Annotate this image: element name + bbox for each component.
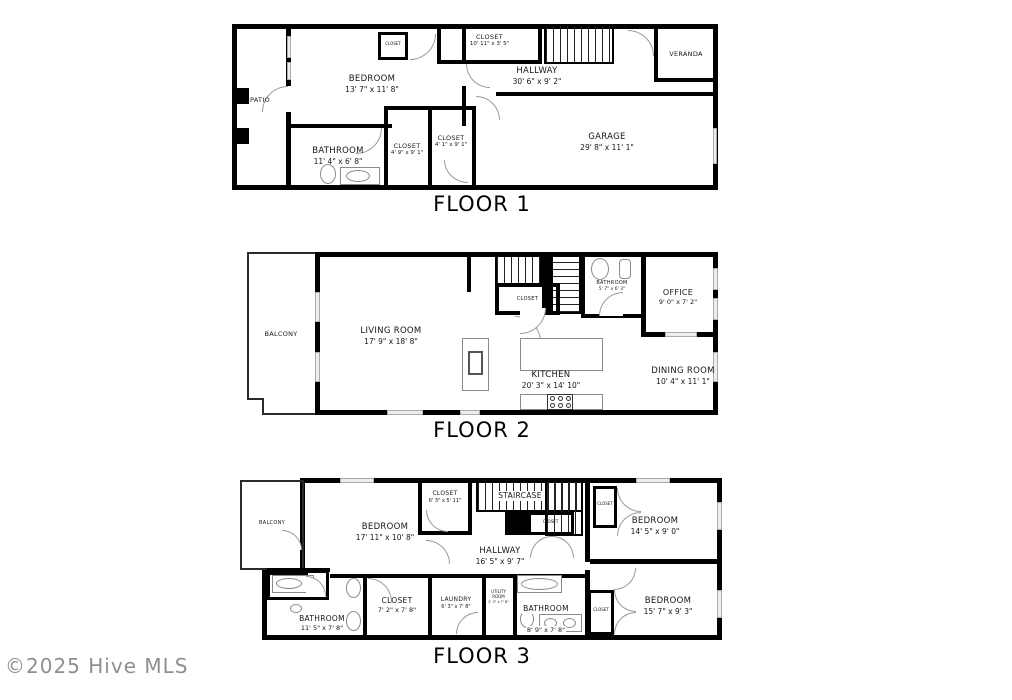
sink-fixture	[468, 351, 483, 375]
room-name: BATHROOM	[292, 146, 384, 157]
room-name: CLOSET	[386, 142, 428, 150]
burner	[558, 396, 563, 401]
burner	[566, 403, 571, 408]
bathtub-basin	[276, 578, 302, 589]
room-name: PATIO	[234, 96, 286, 104]
room-name: CLOSET	[368, 596, 426, 606]
door-arc	[617, 488, 641, 512]
bathtub-basin	[346, 170, 370, 182]
floor1-title: FLOOR 1	[332, 192, 632, 216]
room-name: GARAGE	[532, 132, 682, 143]
floor1-garage-label: GARAGE 29' 8" x 11' 1"	[532, 132, 682, 153]
patio-post	[235, 128, 249, 144]
room-dims: 5' 7" x 6' 3"	[581, 287, 643, 293]
floor3-closet-mid-label: CLOSET 7' 2" x 7' 8"	[368, 596, 426, 614]
window	[713, 128, 717, 164]
floor1-hallway-label: HALLWAY 30' 6" x 9' 2"	[472, 66, 602, 87]
room-name: LIVING ROOM	[341, 326, 441, 337]
door-arc	[426, 540, 450, 564]
wall	[654, 78, 714, 82]
burner	[550, 396, 555, 401]
room-name: LAUNDRY	[432, 596, 480, 604]
floor3-closet-top-label: CLOSET 6' 3" x 5' 11"	[420, 490, 470, 504]
room-name: VERANDA	[658, 50, 714, 58]
window	[315, 292, 320, 322]
room-name: CLOSET	[430, 134, 472, 142]
floor3-bedroom-right-label: BEDROOM 14' 5" x 9' 0"	[605, 516, 705, 537]
floor1-bathroom-label: BATHROOM 11' 4" x 6' 8"	[292, 146, 384, 167]
wall	[482, 574, 486, 635]
door-arc	[456, 612, 478, 634]
room-dims: 29' 8" x 11' 1"	[532, 143, 682, 153]
room-dims: 9' 0" x 7' 2"	[643, 298, 713, 306]
wall	[590, 559, 722, 564]
toilet-fixture	[320, 164, 336, 184]
room-name: HALLWAY	[450, 546, 550, 557]
toilet-fixture	[346, 578, 361, 598]
balcony-notch	[247, 398, 264, 415]
floor3-balcony-label: BALCONY	[242, 520, 302, 527]
floor2-office-label: OFFICE 9' 0" x 7' 2"	[643, 288, 713, 307]
floor3-utility-label: UTILITY ROOM 2' 3" x 7' 8"	[485, 590, 512, 604]
room-name: OFFICE	[643, 288, 713, 298]
floor3-closet-tr-label: CLOSET	[593, 502, 617, 507]
burner	[566, 396, 571, 401]
room-dims: 2' 3" x 7' 8"	[485, 600, 512, 604]
wall	[496, 92, 714, 96]
room-dims: 15' 7" x 9' 3"	[618, 607, 718, 617]
room-dims: 4' 1" x 9' 1"	[430, 142, 472, 149]
room-name: CLOSET	[420, 490, 470, 498]
room-name: BALCONY	[251, 330, 311, 338]
floor2-bathroom-label: BATHROOM 5' 7" x 6' 3"	[581, 280, 643, 292]
room-name: BEDROOM	[618, 596, 718, 607]
window	[287, 62, 291, 80]
floor3-bathroom-mid-label: BATHROOM 8' 9" x 7' 8"	[512, 596, 580, 638]
room-name: UTILITY ROOM	[485, 590, 512, 600]
room-dims: 8' 9" x 7' 8"	[526, 626, 566, 634]
floor3-laundry-label: LAUNDRY 6' 3" x 7' 8"	[432, 596, 480, 610]
room-name: HALLWAY	[472, 66, 602, 77]
room-dims: 4' 9" x 9' 1"	[386, 150, 428, 157]
patio-label: PATIO	[234, 96, 286, 104]
burner	[558, 403, 563, 408]
room-name: BALCONY	[242, 520, 302, 527]
window	[717, 502, 722, 530]
window	[387, 410, 423, 415]
room-dims: 16' 5" x 9' 7"	[450, 557, 550, 567]
staircase-hatch	[544, 24, 614, 64]
room-name: CLOSET	[529, 520, 572, 525]
floor2-title: FLOOR 2	[332, 418, 632, 442]
room-dims: 10' 4" x 11' 1"	[633, 377, 733, 387]
floor1-closet-a-label: CLOSET 4' 9" x 9' 1"	[386, 142, 428, 158]
floor1-closet-b-label: CLOSET 4' 1" x 9' 1"	[430, 134, 472, 150]
window	[665, 332, 697, 337]
room-name: STAIRCASE	[495, 491, 545, 501]
room-dims: 10' 11" x 3' 5"	[439, 41, 540, 48]
toilet-fixture	[591, 258, 609, 280]
stove-fixture	[547, 394, 573, 410]
bathtub-basin	[521, 578, 558, 590]
room-dims: 6' 3" x 5' 11"	[420, 498, 470, 505]
room-name: CLOSET	[439, 33, 540, 41]
room-name: CLOSET	[379, 42, 407, 47]
floor3-bedroom-bottom-label: BEDROOM 15' 7" x 9' 3"	[618, 596, 718, 617]
wall	[262, 635, 722, 640]
room-dims: 20' 3" x 14' 10"	[501, 381, 601, 391]
staircase-hatch	[495, 255, 542, 285]
sink-fixture	[290, 604, 302, 613]
room-name: BATHROOM	[278, 614, 366, 624]
sink-fixture	[619, 259, 631, 279]
room-dims: 13' 7" x 11' 8"	[307, 85, 437, 95]
window	[340, 478, 374, 483]
floor1-veranda-label: VERANDA	[658, 50, 714, 58]
door-arc	[552, 536, 574, 558]
room-dims: 30' 6" x 9' 2"	[472, 77, 602, 87]
room-dims: 7' 2" x 7' 8"	[368, 606, 426, 614]
floor3-closet-br-label: CLOSET	[589, 608, 613, 613]
room-name: DINING ROOM	[633, 366, 733, 377]
floor3-plan: BALCONY BEDROOM 17' 11" x 10' 8" CLOSET …	[240, 478, 722, 640]
room-name: BEDROOM	[307, 74, 437, 85]
watermark: ©2025 Hive MLS	[5, 654, 188, 678]
room-name: CLOSET	[589, 608, 613, 613]
room-dims: 11' 5" x 7' 8"	[278, 624, 366, 632]
floor1-entry-closet-label: CLOSET	[379, 42, 407, 47]
room-name: CLOSET	[593, 502, 617, 507]
floor2-living-room-label: LIVING ROOM 17' 9" x 18' 8"	[341, 326, 441, 347]
window	[315, 352, 320, 382]
floor1-plan: PATIO BEDROOM 13' 7" x 11' 8" CLOSET CLO…	[232, 24, 718, 190]
floor3-bathroom-left-label: BATHROOM 11' 5" x 7' 8"	[278, 614, 366, 632]
window	[287, 36, 291, 58]
floor2-closet-label: CLOSET	[497, 296, 558, 303]
room-dims: 14' 5" x 9' 0"	[605, 527, 705, 537]
room-dims: 17' 9" x 18' 8"	[341, 337, 441, 347]
staircase-landing-block	[505, 512, 528, 535]
floor2-kitchen-label: KITCHEN 20' 3" x 14' 10"	[501, 370, 601, 391]
room-dims: 6' 3" x 7' 8"	[432, 604, 480, 611]
window	[460, 410, 480, 415]
room-name: BATHROOM	[522, 604, 570, 614]
door-arc	[614, 568, 636, 590]
floor3-closet-stairs-label: CLOSET	[529, 520, 572, 525]
floorplan-page: PATIO BEDROOM 13' 7" x 11' 8" CLOSET CLO…	[0, 0, 1012, 700]
room-name: CLOSET	[497, 296, 558, 303]
room-name: BEDROOM	[605, 516, 705, 527]
floor2-plan: BALCONY LIVING ROOM 17' 9" x 18' 8" CLOS…	[247, 252, 718, 415]
floor3-staircase-label: STAIRCASE	[470, 483, 570, 504]
floor1-bedroom-label: BEDROOM 13' 7" x 11' 8"	[307, 74, 437, 95]
floor1-top-closet-label: CLOSET 10' 11" x 3' 5"	[439, 33, 540, 49]
floor3-hallway-label: HALLWAY 16' 5" x 9' 7"	[450, 546, 550, 567]
floor3-title: FLOOR 3	[332, 644, 632, 668]
window	[636, 478, 670, 483]
window	[713, 268, 718, 290]
burner	[550, 403, 555, 408]
kitchen-island	[520, 338, 603, 371]
wall	[585, 478, 590, 562]
floor2-dining-label: DINING ROOM 10' 4" x 11' 1"	[633, 366, 733, 387]
floor2-balcony-label: BALCONY	[251, 330, 311, 338]
room-dims: 11' 4" x 6' 8"	[292, 157, 384, 167]
room-name: KITCHEN	[501, 370, 601, 381]
wall	[467, 252, 471, 292]
window	[713, 298, 718, 320]
